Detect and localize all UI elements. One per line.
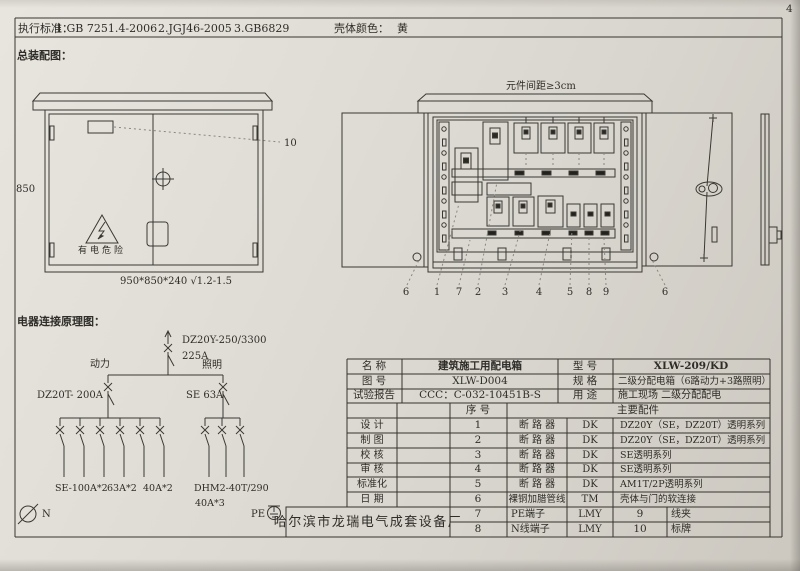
part-row-desc: SE透明系列 [620, 462, 671, 477]
tail-row-name: N线端子 [511, 522, 550, 537]
standard-3: 3.GB6829 [234, 21, 289, 36]
part-row-name: 断 路 器 [519, 462, 555, 477]
part-row-brand: DK [582, 462, 598, 477]
hinge-icon [50, 126, 54, 140]
cell-name-label: 名 称 [362, 359, 386, 374]
main-breaker-model: DZ20Y-250/3300 [182, 333, 266, 348]
callout-9: 9 [603, 285, 609, 300]
cable-clip [602, 248, 610, 260]
power-group-3: 40A*2 [143, 481, 173, 496]
tail-row-no2: 10 [633, 522, 646, 537]
breaker-2 [483, 122, 508, 180]
part-row-desc: 壳体与门的软连接 [620, 492, 696, 507]
part-row-no: 1 [475, 418, 482, 433]
standard-2: 2.JGJ46-2005 [158, 21, 232, 36]
callout-6b: 6 [662, 285, 668, 300]
lighting-branch-label: 照明 [202, 358, 222, 373]
part-row-name: 断 路 器 [519, 477, 555, 492]
mounting-rail-left [439, 122, 449, 250]
callout-2: 2 [475, 285, 481, 300]
part-row-desc: DZ20Y（SE，DZ20T）透明系列 [620, 433, 765, 448]
cable-clip [498, 248, 506, 260]
sign-label-review: 审 核 [360, 462, 383, 477]
cell-drawingno-value: XLW-D004 [452, 374, 508, 389]
callout-10: 10 [284, 136, 297, 151]
lighting-breaker-model: SE 63A [186, 388, 223, 403]
callout-7: 7 [456, 285, 462, 300]
part-row-no: 6 [475, 492, 482, 507]
power-branch-label: 动力 [90, 357, 110, 372]
tail-row-name: PE端子 [511, 507, 545, 522]
sign-label-standardize: 标准化 [357, 477, 387, 492]
ground-hook [413, 253, 421, 261]
cell-model-value: XLW-209/KD [654, 359, 728, 374]
schematic-title: 电器连接原理图： [17, 314, 105, 329]
ground-hook [650, 253, 658, 261]
spacing-note: 元件间距≥3cm [506, 79, 576, 94]
pe-label: PE [251, 507, 265, 522]
part-row-no: 4 [475, 462, 482, 477]
callout-5: 5 [567, 285, 573, 300]
assembly-title: 总装配图： [17, 48, 72, 63]
terminal-strip-lower [452, 229, 615, 238]
factory-name: 哈尔滨市龙瑞电气成套设备厂 [274, 514, 463, 531]
part-row-name: 断 路 器 [519, 433, 555, 448]
power-group-2: 63A*2 [107, 481, 137, 496]
tail-row-brand: LMY [578, 507, 601, 522]
callout-leader [114, 127, 280, 142]
cell-use-value: 施工现场 二级分配配电 [618, 388, 721, 403]
power-breaker-model: DZ20T- 200A [37, 388, 103, 403]
side-panel-view [761, 114, 781, 265]
height-dimension: 850 [16, 182, 35, 197]
closed-cabinet-view [33, 93, 280, 272]
part-row-brand: DK [582, 448, 598, 463]
lighting-branch-rating: 40A*3 [195, 496, 225, 511]
part-row-no: 2 [475, 433, 482, 448]
standard-1: 1.GB 7251.4-2006 [56, 21, 157, 36]
part-row-name: 裸铜加腊管线 [508, 492, 565, 507]
main-breaker [455, 148, 478, 202]
cable-clip [563, 248, 571, 260]
electric-hazard-text: 有电危险 [78, 244, 126, 259]
hinge-icon [50, 243, 54, 257]
callout-8: 8 [586, 285, 592, 300]
nameplate [88, 121, 113, 133]
callout-3: 3 [502, 285, 508, 300]
sign-label-design: 设 计 [360, 418, 383, 433]
terminal-strip-upper [452, 169, 615, 177]
shell-color-value: 黄 [397, 21, 408, 36]
cable-clip [454, 248, 462, 260]
callout-4: 4 [536, 285, 542, 300]
tail-row-name2: 线夹 [671, 507, 691, 522]
part-row-desc: DZ20Y（SE，DZ20T）透明系列 [620, 418, 765, 433]
part-row-brand: DK [582, 418, 598, 433]
part-row-no: 5 [475, 477, 482, 492]
neutral-label: N [42, 507, 51, 522]
lighting-branches [201, 418, 244, 477]
hinge-icon [253, 126, 257, 140]
sign-label-check: 校 核 [360, 448, 383, 463]
part-row-brand: TM [582, 492, 599, 507]
cell-model-label: 型 号 [573, 359, 597, 374]
part-row-brand: DK [582, 477, 598, 492]
tail-row-name2: 标牌 [671, 522, 691, 537]
hinge-icon [253, 243, 257, 257]
size-note: 950*850*240 √1.2-1.5 [120, 274, 232, 289]
open-door-right [642, 113, 732, 266]
cell-drawingno-label: 图 号 [362, 374, 386, 389]
tail-row-no: 8 [475, 522, 482, 537]
callout-6a: 6 [403, 285, 409, 300]
sign-label-draft: 制 图 [360, 433, 383, 448]
scanned-drawing-page: 4 执行标准： 1.GB 7251.4-2006 2.JGJ46-2005 3.… [0, 0, 800, 571]
tail-row-no: 7 [475, 507, 482, 522]
shell-color-label: 壳体颜色： [334, 21, 389, 36]
tail-row-brand: LMY [578, 522, 601, 537]
part-row-desc: SE透明系列 [620, 448, 671, 463]
cell-spec-value: 二级分配电箱（6路动力+3路照明） [618, 374, 771, 389]
electric-hazard-icon [86, 215, 118, 243]
part-row-name: 断 路 器 [519, 448, 555, 463]
power-branches [56, 418, 164, 477]
part-row-brand: DK [582, 433, 598, 448]
part-row-desc: AM1T/2P透明系列 [620, 477, 703, 492]
cell-spec-label: 规 格 [573, 374, 597, 389]
top-breaker-row [514, 117, 614, 153]
open-door-left [342, 113, 428, 267]
neutral-symbol-icon [18, 504, 38, 524]
col-header-serial: 序 号 [466, 403, 490, 418]
power-group-1: SE-100A*2 [55, 481, 108, 496]
lighting-branch-model: DHM2-40T/290 [194, 481, 269, 496]
page-number: 4 [786, 2, 793, 17]
cell-name-value: 建筑施工用配电箱 [438, 359, 522, 374]
cell-use-label: 用 途 [573, 388, 597, 403]
part-row-name: 断 路 器 [519, 418, 555, 433]
callout-leaders [407, 153, 665, 285]
door-lock-icon [152, 168, 174, 190]
open-cabinet-view [342, 94, 781, 285]
bottom-breaker-row [487, 196, 614, 227]
col-header-parts: 主要配件 [617, 403, 659, 418]
wiring-duct [487, 183, 531, 195]
tail-row-no2: 9 [637, 507, 644, 522]
part-row-no: 3 [475, 448, 482, 463]
door-handle [147, 222, 168, 246]
cell-testreport-value: CCC：C-032-10451B-S [419, 388, 541, 403]
mounting-rail-right [621, 122, 631, 250]
callout-1: 1 [434, 285, 440, 300]
cell-testreport-label: 试验报告 [353, 388, 395, 403]
sign-label-date: 日 期 [360, 492, 383, 507]
